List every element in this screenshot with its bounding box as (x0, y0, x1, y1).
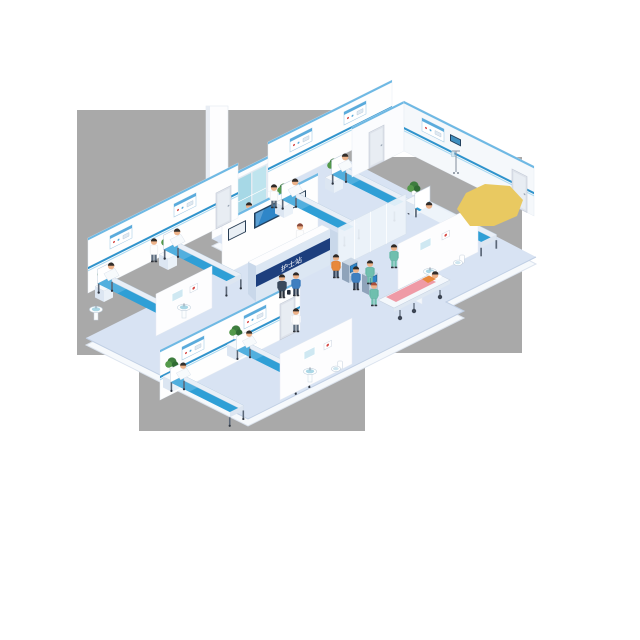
hospital-isometric-illustration: 护士站 (0, 0, 640, 640)
room-door (216, 186, 231, 229)
room-door (369, 125, 384, 168)
briefcase (287, 290, 291, 295)
illustration-canvas: 护士站 (0, 0, 640, 640)
